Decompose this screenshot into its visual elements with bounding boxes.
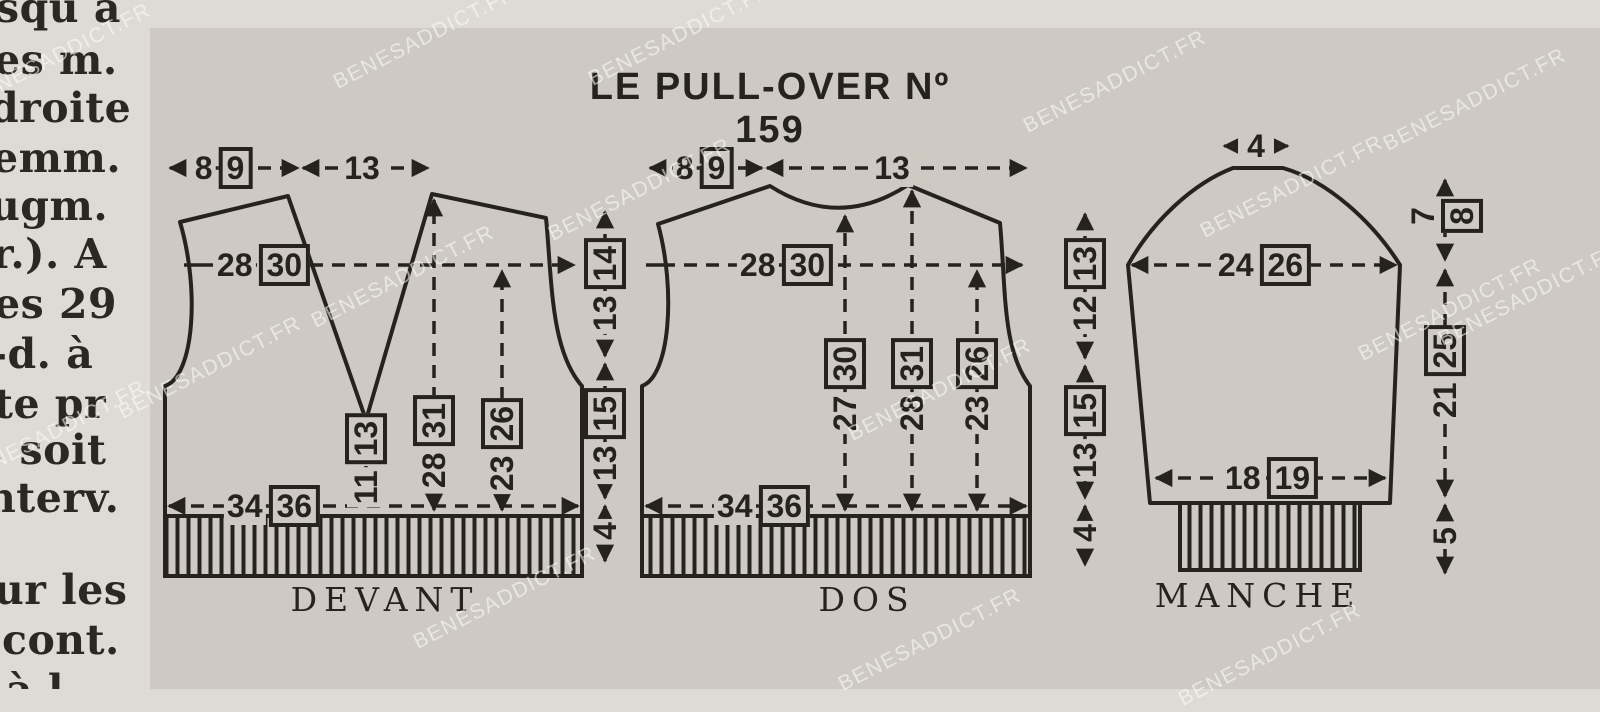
manche-cuff-width-main: 18	[1222, 459, 1264, 497]
page-title: LE PULL-OVER Nº 159	[558, 66, 982, 152]
dos-bust-alt: 30	[782, 244, 834, 286]
devant-neck-dim: 13	[341, 152, 383, 184]
devant-neck-main: 13	[341, 149, 383, 187]
manche-cuff-ribbing	[1180, 503, 1360, 570]
devant-armhole-height-main: 23	[483, 453, 521, 495]
dos-shoulder-height-alt: 31	[891, 338, 933, 390]
dm-side-dim: 1315	[1064, 385, 1106, 481]
dos-armhole-height-main: 23	[958, 393, 996, 435]
schematic-inset: LE PULL-OVER Nº 159 DEVANT DOS MANCHE 89…	[150, 28, 1600, 689]
devant-shoulder-main: 8	[192, 149, 216, 187]
manche-cap-height-dim: 78	[1407, 199, 1483, 233]
left-text-line: r.). A	[0, 230, 107, 278]
manche-top-width-alt: 26	[1260, 244, 1312, 286]
devant-hem-main: 34	[224, 487, 266, 525]
dd-side-main: 13	[586, 443, 624, 485]
dd-armhole-main: 13	[586, 293, 624, 335]
manche-cap-height-main: 7	[1407, 199, 1439, 233]
devant-hem-dim: 3436	[224, 485, 320, 527]
left-text-line: à l	[6, 666, 64, 689]
left-text-line: cont.	[2, 616, 120, 664]
dos-neck-height-alt: 30	[824, 338, 866, 390]
left-text-line: es 29	[0, 280, 117, 328]
manche-label: MANCHE	[1155, 576, 1362, 615]
devant-shoulder-alt: 9	[219, 147, 253, 189]
dos-hem-alt: 36	[759, 485, 811, 527]
dos-neck-main: 13	[871, 149, 913, 187]
manche-cap-top-dim: 4	[1244, 130, 1268, 162]
manche-length-main: 21	[1426, 380, 1464, 422]
manche-top-width-main: 24	[1215, 246, 1257, 284]
dd-rib-dim: 4	[589, 519, 621, 543]
dos-hem-main: 34	[714, 487, 756, 525]
devant-vneck-main: 11	[347, 467, 385, 507]
dd-armhole-alt: 14	[584, 238, 626, 290]
magazine-scan-page: { "colors": { "ink": "#26231f", "paper":…	[0, 0, 1600, 689]
dos-neck-dim: 13	[871, 152, 913, 184]
devant-shoulder-dim: 89	[192, 147, 253, 189]
left-text-line: ur les	[0, 566, 127, 614]
dd-rib-main: 4	[586, 519, 624, 543]
dd-side-dim: 1315	[584, 388, 626, 484]
devant-vneck-dim: 1113	[345, 413, 387, 507]
manche-cap-top-main: 4	[1244, 127, 1268, 165]
dd-side-alt: 15	[584, 388, 626, 440]
dm-side-main: 13	[1066, 440, 1104, 482]
left-text-line: -d. à	[0, 330, 93, 378]
devant-armhole-height-alt: 26	[481, 398, 523, 450]
left-text-line: ugm.	[0, 182, 108, 230]
devant-armhole-height-dim: 2326	[481, 398, 523, 494]
manche-cuff-width-dim: 1819	[1222, 457, 1318, 499]
dos-label: DOS	[818, 580, 915, 619]
left-text-line: emm.	[0, 134, 121, 182]
dos-hem-dim: 3436	[714, 485, 810, 527]
dm-armhole-alt: 13	[1064, 238, 1106, 290]
left-text-line: droite	[0, 84, 131, 132]
dm-armhole-dim: 1213	[1064, 238, 1106, 334]
dm-rib-dim: 4	[1069, 521, 1101, 545]
dos-bust-dim: 2830	[737, 244, 833, 286]
dd-armhole-dim: 1314	[584, 238, 626, 334]
devant-bust-alt: 30	[259, 244, 311, 286]
devant-bust-dim: 2830	[214, 244, 310, 286]
manche-cuff-height-main: 5	[1426, 524, 1464, 548]
manche-top-width-dim: 2426	[1215, 244, 1311, 286]
dm-armhole-main: 12	[1066, 293, 1104, 335]
dos-ribbing	[642, 516, 1030, 576]
devant-shoulder-height-dim: 2831	[413, 395, 455, 491]
dm-side-alt: 15	[1064, 385, 1106, 437]
manche-cap-height-alt: 8	[1441, 199, 1483, 233]
devant-vneck-alt: 13	[345, 413, 387, 465]
manche-cuff-width-alt: 19	[1267, 457, 1319, 499]
dos-bust-main: 28	[737, 246, 779, 284]
manche-outline	[1128, 168, 1400, 503]
devant-hem-alt: 36	[269, 485, 321, 527]
left-text-line: nterv.	[0, 474, 119, 522]
devant-shoulder-height-alt: 31	[413, 395, 455, 447]
dm-rib-main: 4	[1066, 521, 1104, 545]
devant-shoulder-height-main: 28	[415, 450, 453, 492]
left-text-column: squ à es m. droite emm. ugm. r.). A es 2…	[0, 0, 152, 689]
devant-bust-main: 28	[214, 246, 256, 284]
manche-cuff-height-dim: 5	[1429, 524, 1461, 548]
